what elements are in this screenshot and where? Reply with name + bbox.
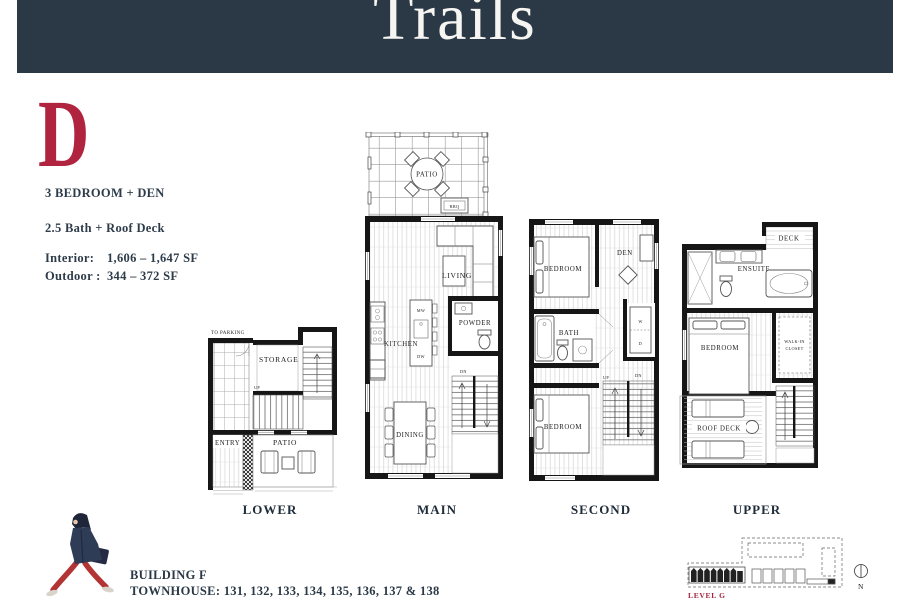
roof-deck-area: ROOF DECK <box>680 396 766 464</box>
room-label-patio: PATIO <box>416 172 438 179</box>
room-label-living: LIVING <box>442 271 472 280</box>
stair-label-up: UP <box>603 375 609 380</box>
dining-table-icon: DINING <box>385 402 435 464</box>
neighbor-buildings <box>752 569 835 584</box>
site-key-plan: LEVEL G N <box>672 523 872 601</box>
outdoor-label: Outdoor : <box>45 269 107 284</box>
interior-row: Interior: 1,606 – 1,647 SF <box>45 251 198 266</box>
patio-chair-icon <box>261 451 278 473</box>
second-stairs: UP DN <box>603 373 654 475</box>
stair-label-dn: DN <box>635 373 642 378</box>
walking-person-icon <box>45 508 120 603</box>
room-label-roof-deck: ROOF DECK <box>697 426 741 433</box>
room-label-den: DEN <box>617 250 633 257</box>
site-level-label: LEVEL G <box>688 591 726 600</box>
interior-label: Interior: <box>45 251 107 266</box>
plan-name-main: MAIN <box>392 502 482 518</box>
plan-name-lower: LOWER <box>225 502 315 518</box>
room-label-ensuite: ENSUITE <box>738 266 771 273</box>
project-title: Trails <box>17 0 893 56</box>
room-label-bedroom: BEDROOM <box>701 345 739 352</box>
ensuite: ENSUITE <box>687 250 813 308</box>
bbq-icon: BBQ <box>441 198 468 213</box>
upper-floor-plan: DECK ENSUITE <box>676 220 838 482</box>
room-label-kitchen: KITCHEN <box>384 341 418 348</box>
unit-baths: 2.5 Bath + Roof Deck <box>45 221 165 236</box>
shower-icon <box>688 252 712 304</box>
room-label-deck: DECK <box>779 236 800 243</box>
roof-trellis-patio: PATIO BBQ <box>366 132 488 217</box>
upper-stairs <box>776 386 814 463</box>
townhouse-list: TOWNHOUSE: 131, 132, 133, 134, 135, 136,… <box>130 584 440 599</box>
outdoor-value: 344 – 372 SF <box>107 269 178 284</box>
room-label-powder: POWDER <box>459 320 491 327</box>
north-label: N <box>858 582 864 591</box>
bed-icon: BEDROOM <box>689 318 749 394</box>
bathtub-icon <box>766 270 812 297</box>
microwave-label: MW <box>417 308 426 313</box>
bbq-label: BBQ <box>450 204 460 209</box>
walk-in-closet: WALK-IN CLOSET <box>776 313 813 378</box>
room-label-entry: ENTRY <box>215 440 240 447</box>
lower-floor-plan: TO PARKING STORAGE UP <box>195 327 345 499</box>
stair-label-dn: DN <box>460 369 467 374</box>
floorplan-page: Trails D 3 BEDROOM + DEN 2.5 Bath + Roof… <box>0 0 910 606</box>
bed-icon: BEDROOM <box>534 395 589 453</box>
dryer-label: D <box>639 341 642 346</box>
bed-icon: BEDROOM <box>534 237 589 297</box>
patio-table-icon <box>282 457 294 469</box>
interior-value: 1,606 – 1,647 SF <box>107 251 198 266</box>
second-floor-plan: BEDROOM DEN BATH W D <box>525 213 663 489</box>
plan-name-second: SECOND <box>556 502 646 518</box>
room-label-to-parking: TO PARKING <box>211 331 245 336</box>
building-label: BUILDING F <box>130 568 207 583</box>
outdoor-row: Outdoor : 344 – 372 SF <box>45 269 178 284</box>
room-label-storage: STORAGE <box>259 355 298 364</box>
bathroom: BATH <box>534 314 594 363</box>
toilet-icon <box>478 330 491 349</box>
washer-label: W <box>638 319 643 324</box>
toilet-icon <box>720 276 732 297</box>
kitchen-counter <box>370 302 385 380</box>
main-floor-plan: PATIO BBQ LIVING <box>363 132 505 482</box>
garage-area <box>208 338 253 435</box>
room-label-dining: DINING <box>396 432 424 439</box>
room-label-walkin-1: WALK-IN <box>784 339 804 344</box>
room-label-patio: PATIO <box>273 438 297 447</box>
stair-label-up: UP <box>254 385 260 390</box>
lower-patio: PATIO <box>253 435 337 491</box>
washer-dryer-closet: W D <box>627 303 655 357</box>
room-label-bedroom: BEDROOM <box>544 424 582 431</box>
patio-chair-icon <box>298 451 315 473</box>
room-label-bedroom: BEDROOM <box>544 266 582 273</box>
plan-name-upper: UPPER <box>712 502 802 518</box>
unit-bedrooms: 3 BEDROOM + DEN <box>45 186 165 201</box>
header-band: Trails <box>17 0 893 73</box>
toilet-icon <box>557 340 568 360</box>
entry-area: ENTRY <box>208 430 243 494</box>
unit-letter: D <box>38 98 89 170</box>
room-label-walkin-2: CLOSET <box>785 346 803 351</box>
dishwasher-label: DW <box>417 354 425 359</box>
building-f-highlight <box>689 567 745 583</box>
room-label-bath: BATH <box>559 330 579 337</box>
north-arrow-icon: N <box>855 565 868 592</box>
screen-wall <box>243 435 253 490</box>
main-stairs <box>452 376 498 473</box>
patio-table-icon: PATIO <box>405 152 450 197</box>
